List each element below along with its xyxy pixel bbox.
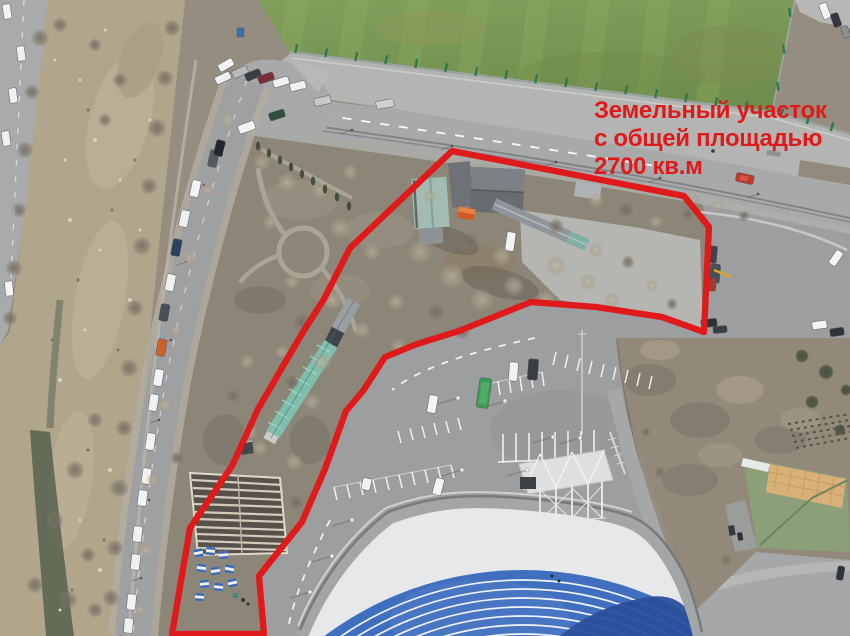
- blue-bin: [237, 28, 244, 37]
- aerial-photo: Земельный участок с общей площадью 2700 …: [0, 0, 850, 636]
- aerial-scene: [0, 0, 850, 636]
- plot-annotation-line3: 2700 кв.м: [594, 153, 827, 181]
- plot-annotation-line1: Земельный участок: [594, 97, 827, 125]
- pergola-frame: [190, 473, 287, 555]
- plot-annotation: Земельный участок с общей площадью 2700 …: [594, 97, 827, 181]
- plot-annotation-line2: с общей площадью: [594, 125, 827, 153]
